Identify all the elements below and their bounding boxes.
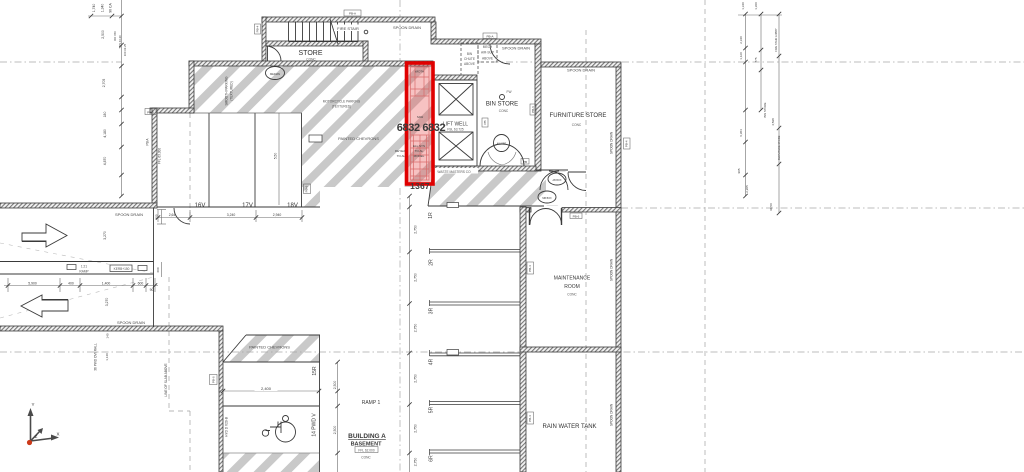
svg-text:PB-6: PB-6 [147,110,154,114]
svg-text:BIN STORE: BIN STORE [763,102,767,117]
svg-text:1,120: 1,120 [739,52,743,60]
svg-text:ABOVE: ABOVE [464,62,475,66]
svg-text:SPOON DRAIN: SPOON DRAIN [393,25,421,30]
svg-text:170: 170 [218,387,222,392]
svg-text:SPOON DRAIN: SPOON DRAIN [610,131,614,154]
svg-text:ROOM: ROOM [564,284,580,290]
svg-text:SPOON DRAIN: SPOON DRAIN [115,212,143,217]
svg-text:PB-4: PB-4 [528,415,532,422]
svg-text:775: 775 [754,57,758,62]
svg-text:SPOON DRAIN: SPOON DRAIN [502,46,530,51]
svg-text:600: 600 [138,282,144,286]
svg-text:TOS 63.30: TOS 63.30 [118,35,122,49]
svg-text:AB BOX: AB BOX [553,179,562,182]
svg-text:16V: 16V [195,203,206,209]
svg-text:PB-6: PB-6 [531,106,535,113]
svg-text:2,750: 2,750 [414,424,418,433]
svg-text:18V: 18V [287,203,298,209]
svg-text:2R: 2R [429,259,435,266]
svg-text:Y: Y [31,402,34,407]
svg-text:REYEA: REYEA [395,149,405,153]
svg-text:2,940: 2,940 [273,213,282,217]
svg-text:CONC: CONC [361,456,371,460]
svg-text:3,270: 3,270 [105,298,109,307]
svg-text:RAMP 1: RAMP 1 [362,400,381,406]
svg-text:PB-6: PB-6 [212,376,216,383]
svg-text:WIDTH: WIDTH [415,70,424,74]
svg-text:1,740: 1,740 [92,4,96,13]
svg-text:X: X [56,432,59,437]
svg-text:MB BOX: MB BOX [542,197,552,200]
svg-text:6R: 6R [429,455,435,462]
svg-text:2,205: 2,205 [745,185,749,193]
svg-text:ELL SYS: ELL SYS [413,144,425,148]
svg-text:HYD D V20-B: HYD D V20-B [225,417,229,437]
svg-text:CONC: CONC [499,109,509,113]
svg-text:BUILDING A: BUILDING A [348,433,386,440]
svg-text:2,500: 2,500 [101,30,105,39]
svg-text:(TEXTURED): (TEXTURED) [332,105,351,109]
svg-text:FURNITURE STORE: FURNITURE STORE [550,113,607,119]
svg-text:2,400: 2,400 [261,386,272,391]
svg-text:600: 600 [156,267,160,272]
svg-text:1:21: 1:21 [81,265,87,269]
svg-text:FFL 63.300: FFL 63.300 [158,148,162,164]
svg-text:6,384: 6,384 [739,129,743,137]
svg-text:1,340: 1,340 [741,2,745,10]
svg-text:MOTORCYCLE PARKING: MOTORCYCLE PARKING [323,100,361,104]
svg-text:2,750: 2,750 [414,273,418,282]
svg-text:2,500: 2,500 [333,426,337,435]
svg-text:4,870: 4,870 [103,157,107,166]
svg-text:SPOON DRAIN: SPOON DRAIN [610,258,614,281]
svg-text:Z: Z [35,434,38,439]
svg-text:LINE OF SLAB ABOVE: LINE OF SLAB ABOVE [164,363,168,396]
svg-text:4R: 4R [429,358,435,365]
svg-text:2,750: 2,750 [414,374,418,383]
svg-text:SPOON DRAIN: SPOON DRAIN [567,68,595,73]
svg-text:FW: FW [507,90,512,94]
svg-text:4,180: 4,180 [103,129,107,138]
svg-text:PB: PB [483,120,487,124]
svg-text:2,500: 2,500 [333,381,337,390]
svg-text:90: 90 [150,288,154,292]
svg-text:4,598: 4,598 [771,118,775,126]
svg-text:SAW: SAW [417,115,424,119]
svg-text:3R: 3R [429,307,435,314]
svg-text:2,340: 2,340 [739,36,743,44]
svg-text:RAIN WATER TANK: RAIN WATER TANK [542,424,596,430]
svg-text:AVLOBE: AVLOBE [497,143,507,146]
svg-text:TO AL: TO AL [415,149,424,153]
svg-text:CONC: CONC [306,58,316,62]
svg-text:SMOOTH PARKING: SMOOTH PARKING [225,76,229,106]
svg-text:BIN STORE: BIN STORE [486,102,518,108]
svg-text:2,64: 2,64 [169,213,176,217]
svg-text:PB-A: PB-A [349,12,356,16]
svg-text:KERB+150: KERB+150 [114,267,130,271]
svg-text:96 CA: 96 CA [109,3,113,13]
svg-text:1R: 1R [428,212,434,219]
svg-text:PB-6: PB-6 [573,215,580,219]
svg-text:AIR-SUP: AIR-SUP [481,51,494,55]
svg-text:FURNITURE STORE: FURNITURE STORE [777,135,781,160]
svg-text:WASTE MASTERS CO: WASTE MASTERS CO [437,170,471,174]
svg-text:2,705: 2,705 [102,79,106,88]
svg-text:TO AL: TO AL [397,154,406,158]
svg-text:17V: 17V [242,203,253,209]
svg-text:1,400: 1,400 [102,282,111,286]
svg-text:2,750: 2,750 [414,458,418,467]
svg-text:5,900: 5,900 [28,282,37,286]
svg-text:PAINTED CHEVRONS: PAINTED CHEVRONS [338,136,379,141]
svg-text:140: 140 [106,333,110,338]
svg-text:CONC: CONC [572,123,582,127]
svg-text:BIN: BIN [467,52,473,56]
svg-text:100 63.25: 100 63.25 [123,43,127,56]
svg-text:2,750: 2,750 [414,225,418,234]
svg-text:1367: 1367 [410,181,430,191]
svg-text:FFL 62.000: FFL 62.000 [358,449,374,453]
svg-text:PB-4: PB-4 [528,265,532,272]
svg-text:1,360: 1,360 [754,2,758,10]
svg-text:CHUTE: CHUTE [464,57,475,61]
svg-text:MEDIAN: MEDIAN [270,72,280,76]
svg-text:MODEL: MODEL [414,154,425,158]
svg-text:MAINTENANCE: MAINTENANCE [554,276,591,282]
svg-text:90,50: 90,50 [769,203,773,211]
svg-text:FSL 63.725: FSL 63.725 [447,128,464,132]
svg-text:36 PWD OVERALL: 36 PWD OVERALL [94,343,98,371]
svg-text:(TEXTURED): (TEXTURED) [230,81,234,100]
svg-text:PAINTED CHEVRONS: PAINTED CHEVRONS [249,345,290,350]
svg-text:PB-4: PB-4 [256,25,260,32]
svg-text:6832 6832: 6832 6832 [397,122,446,134]
svg-text:MECH: MECH [483,45,493,49]
svg-text:5R: 5R [429,406,435,413]
svg-text:3,240: 3,240 [227,213,236,217]
svg-text:PB-A: PB-A [486,34,493,38]
svg-text:PB: PB [523,160,527,164]
svg-text:SPOON DRAIN: SPOON DRAIN [610,403,614,426]
svg-text:CONC: CONC [567,293,577,297]
svg-text:SPOON DRAIN: SPOON DRAIN [117,320,145,325]
svg-text:RD 150: RD 150 [113,31,117,41]
svg-text:15R: 15R [312,366,318,376]
svg-text:PB-6: PB-6 [305,185,309,192]
svg-text:PB A: PB A [146,138,150,146]
svg-text:STORE: STORE [299,50,323,57]
svg-text:2,750: 2,750 [414,324,418,333]
svg-text:RAMP: RAMP [79,270,88,274]
svg-text:3,270: 3,270 [103,231,107,240]
svg-text:400: 400 [68,282,74,286]
svg-text:FIRE STAIR LOBBY: FIRE STAIR LOBBY [774,28,778,52]
svg-text:1,340: 1,340 [101,4,105,13]
svg-text:14 PWD V: 14 PWD V [312,413,318,437]
svg-text:FIRE STAIR: FIRE STAIR [337,26,359,31]
svg-text:5,50: 5,50 [274,153,278,160]
svg-text:400: 400 [155,214,159,219]
svg-text:905: 905 [737,168,741,173]
svg-text:ABOVE: ABOVE [482,57,493,61]
svg-text:PB-4: PB-4 [625,140,629,147]
svg-text:1,140: 1,140 [105,353,109,361]
svg-text:180: 180 [103,112,107,118]
